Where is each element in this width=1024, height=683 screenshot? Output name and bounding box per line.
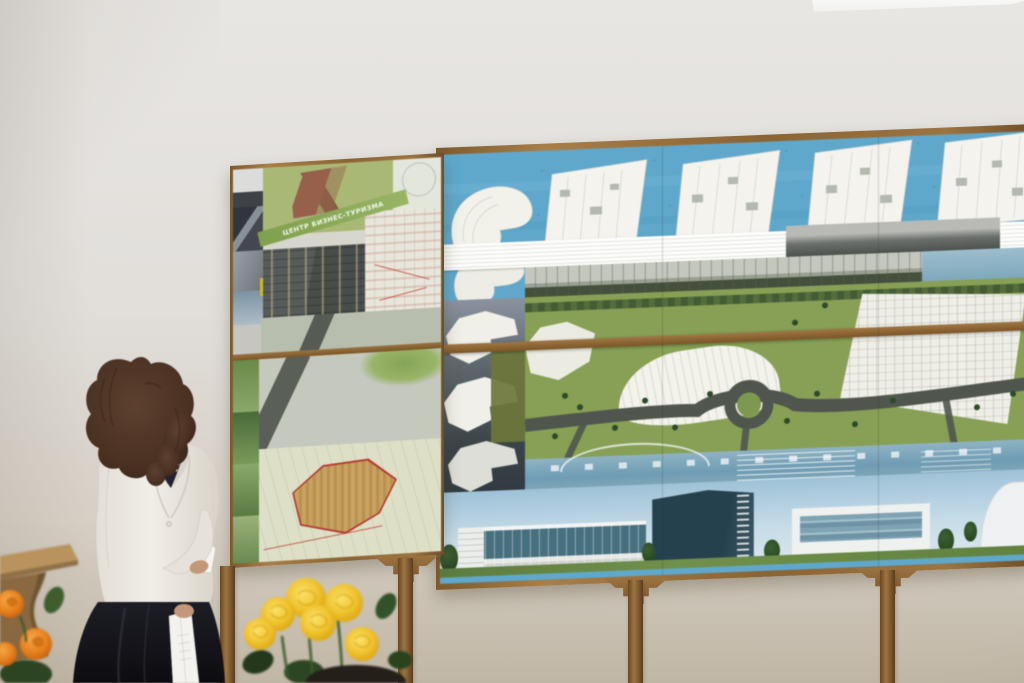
- left-presentation-board: ЦЕНТР БИЗНЕС-ТУРИЗМА: [230, 153, 444, 568]
- photo-thumbnail: [233, 359, 259, 413]
- roads-layer: [525, 277, 1024, 467]
- photo-thumbnail: [233, 206, 263, 252]
- tree-render: [764, 539, 780, 562]
- yellow-rose: [345, 627, 379, 661]
- photo-thumbnail: [233, 250, 263, 292]
- masterplan-panel: [525, 277, 1024, 467]
- map-ring-road: [402, 161, 436, 197]
- cardigan-button: [166, 521, 171, 526]
- curved-white-building: [980, 481, 1024, 555]
- water-band-right: [922, 247, 1024, 281]
- balcony-grid: [737, 494, 749, 560]
- photo-thumbnail: [233, 411, 259, 465]
- glass-curtain-wall: [800, 511, 922, 542]
- photo-thumbnail: [233, 515, 259, 564]
- panel-seam: [662, 146, 663, 575]
- photo-scene: ЦЕНТР БИЗНЕС-ТУРИЗМА: [0, 0, 1024, 683]
- plaza-aerial-render: [233, 348, 441, 451]
- left-board-panels: ЦЕНТР БИЗНЕС-ТУРИЗМА: [233, 157, 441, 564]
- ceiling-corner: [812, 0, 1024, 15]
- route-line: [374, 264, 429, 280]
- right-board-panels: [440, 131, 1024, 584]
- tree-render: [964, 521, 977, 542]
- yellow-rose: [300, 605, 336, 641]
- long-glass-building: [458, 521, 646, 573]
- legend-text-block-2: [921, 449, 991, 474]
- right-presentation-board: [436, 124, 1024, 590]
- easel-leg: [628, 580, 643, 683]
- dark-glass-tower: [652, 488, 754, 566]
- topographic-map: [233, 438, 441, 564]
- route-line: [379, 287, 426, 301]
- orange-flowers: [0, 582, 68, 683]
- panel-seam: [878, 137, 879, 566]
- photo-thumbnail: [233, 168, 263, 208]
- black-skirt: [73, 602, 225, 683]
- building-end-tower: [458, 527, 484, 572]
- dark-plans-panel: [440, 297, 525, 506]
- yellow-rose: [244, 618, 276, 650]
- yellow-roses-bouquet: [238, 576, 416, 683]
- tree-render: [642, 542, 655, 563]
- tree-render: [938, 528, 954, 553]
- woman-presenter: [65, 348, 225, 683]
- easel-leg: [880, 570, 895, 683]
- photo-thumbnail: [233, 463, 259, 517]
- green-patch: [491, 345, 525, 442]
- leaf-plan: [448, 440, 518, 493]
- photo-thumbnail: [233, 324, 263, 355]
- photo-thumbnail: [233, 290, 263, 326]
- left-hand: [174, 604, 194, 618]
- white-glass-building: [792, 503, 930, 561]
